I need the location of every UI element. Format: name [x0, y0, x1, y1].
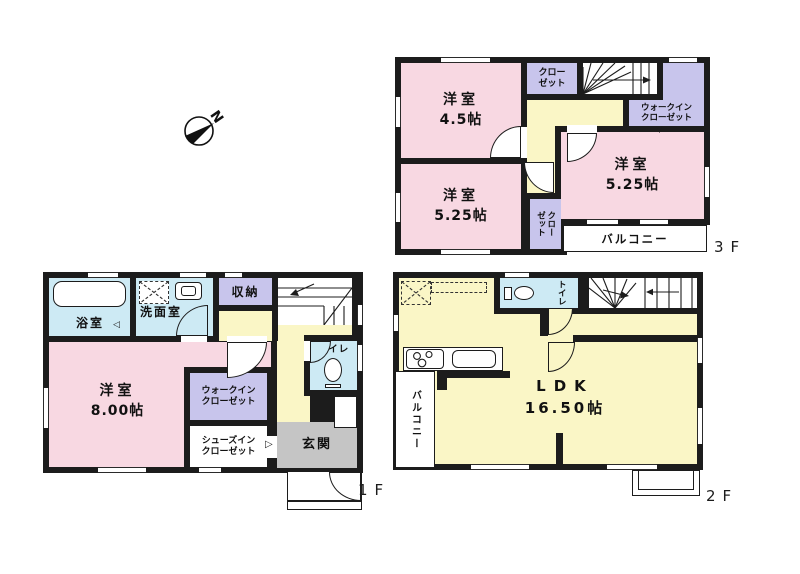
window — [704, 167, 710, 197]
compass-north-icon: N — [172, 100, 238, 158]
bathtub-icon — [53, 281, 126, 307]
wall-segment — [437, 371, 447, 390]
wall-segment — [573, 335, 697, 342]
ldk-label-group: LDK 16.50帖 — [480, 374, 650, 420]
toilet-bowl-icon — [514, 286, 534, 300]
window — [225, 272, 242, 278]
balcony-label: バルコニー — [601, 231, 668, 247]
door-opening — [521, 127, 527, 158]
floor-label-3f: 3F — [714, 238, 746, 256]
window — [441, 57, 490, 63]
room-label: 洗面室 — [140, 303, 182, 320]
balcony-2f: バルコニー — [395, 371, 435, 468]
window — [88, 272, 118, 278]
staircase-2f-treads — [589, 278, 697, 308]
room-bedroom-5-25-south: 洋室 5.25帖 — [401, 164, 521, 249]
room-label: 玄関 — [302, 435, 332, 455]
floor-label-2f: 2F — [706, 487, 738, 505]
window — [587, 219, 618, 225]
wic-label-line1: ウォークイン — [641, 103, 692, 113]
toilet-base-icon — [325, 384, 341, 388]
closet-3f-vertical: クロー ゼット — [530, 199, 561, 249]
window — [697, 338, 703, 363]
stove-burners-icon — [406, 349, 444, 369]
window — [43, 388, 49, 428]
staircase-1f-treads — [278, 278, 352, 325]
closet-label-col1: クロー — [546, 211, 556, 237]
entrance-genkan: 玄関 — [277, 422, 357, 468]
kitchen-sink-icon — [452, 350, 496, 368]
porch-1f-step — [287, 501, 362, 510]
washing-machine-x-icon — [139, 281, 169, 304]
room-size: 5.25帖 — [434, 207, 488, 227]
window — [505, 272, 529, 278]
staircase-3f-treads — [583, 63, 657, 94]
wall-segment — [556, 433, 563, 464]
window — [471, 464, 529, 470]
room-label: 洋室 — [443, 90, 479, 111]
window — [199, 467, 221, 473]
room-size: 5.25帖 — [606, 176, 660, 196]
room-size: 16.50帖 — [525, 398, 605, 419]
window — [98, 467, 146, 473]
toilet-bowl-icon — [324, 358, 342, 382]
window — [441, 249, 490, 255]
wash-basin-inner-icon — [181, 286, 196, 296]
counter-space-outline — [431, 282, 487, 293]
window — [357, 345, 363, 371]
wic-label-line2: クローゼット — [641, 113, 692, 123]
room-label: 収納 — [231, 283, 259, 300]
wall-segment — [540, 314, 548, 336]
sic-label-line1: シューズイン — [202, 436, 256, 447]
window — [640, 219, 668, 225]
closet-3f-top: クロー ゼット — [527, 63, 577, 94]
bedroom-8-label-group: 洋室 8.00帖 — [55, 376, 180, 426]
bathroom-label-group: 浴室 — [62, 314, 118, 330]
door-opening — [567, 125, 597, 133]
porch-2f-inner — [638, 470, 694, 490]
walk-in-closet-1f: ウォークイン クローゼット — [190, 373, 267, 420]
balcony-label: バルコニー — [408, 390, 423, 450]
balcony-3f: バルコニー — [563, 225, 707, 252]
toilet-tank-icon — [504, 287, 512, 300]
room-label: 浴室 — [76, 314, 104, 331]
floor-plan-canvas: N 洋室 4.5帖 クロー ゼット ウォークイン クローゼット — [0, 0, 800, 574]
entrance-step-box — [334, 396, 357, 428]
wic-label-line2: クローゼット — [201, 397, 255, 408]
closet-label-line1: クロー — [538, 68, 565, 79]
door-opening — [181, 336, 207, 342]
window — [180, 272, 206, 278]
sic-label-line2: クローゼット — [201, 447, 255, 458]
floor-label-1f: 1F — [358, 481, 390, 499]
window — [697, 408, 703, 444]
toilet-label-text: トイレ — [556, 280, 566, 307]
closet-label-line2: ゼット — [538, 79, 565, 90]
room-label: LDK — [536, 375, 594, 398]
room-size: 8.00帖 — [91, 402, 145, 422]
hall-3f-upper — [527, 100, 623, 126]
shoes-in-closet: シューズイン クローゼット — [190, 426, 267, 467]
room-label: 洋室 — [615, 155, 651, 176]
room-label: 洋室 — [100, 381, 136, 402]
window — [393, 315, 399, 331]
door-mark-icon: ◁ — [113, 321, 120, 330]
door-mark-icon: ▷ — [265, 440, 273, 450]
window — [357, 305, 363, 325]
wic-label-line1: ウォークイン — [201, 386, 255, 397]
window — [395, 97, 401, 127]
storage-closet: 収納 — [219, 278, 272, 305]
toilet-2f-label: トイレ — [556, 280, 566, 307]
window — [669, 57, 697, 63]
closet-label-col2: ゼット — [535, 211, 545, 237]
walk-in-closet-3f: ウォークイン クローゼット — [629, 100, 704, 126]
room-label: 洋室 — [443, 186, 479, 207]
room-size: 4.5帖 — [440, 111, 483, 131]
appliance-x-icon — [401, 281, 431, 305]
swing-mark-icon: ▽ — [656, 126, 663, 135]
window — [395, 193, 401, 222]
wall-segment — [584, 308, 697, 314]
